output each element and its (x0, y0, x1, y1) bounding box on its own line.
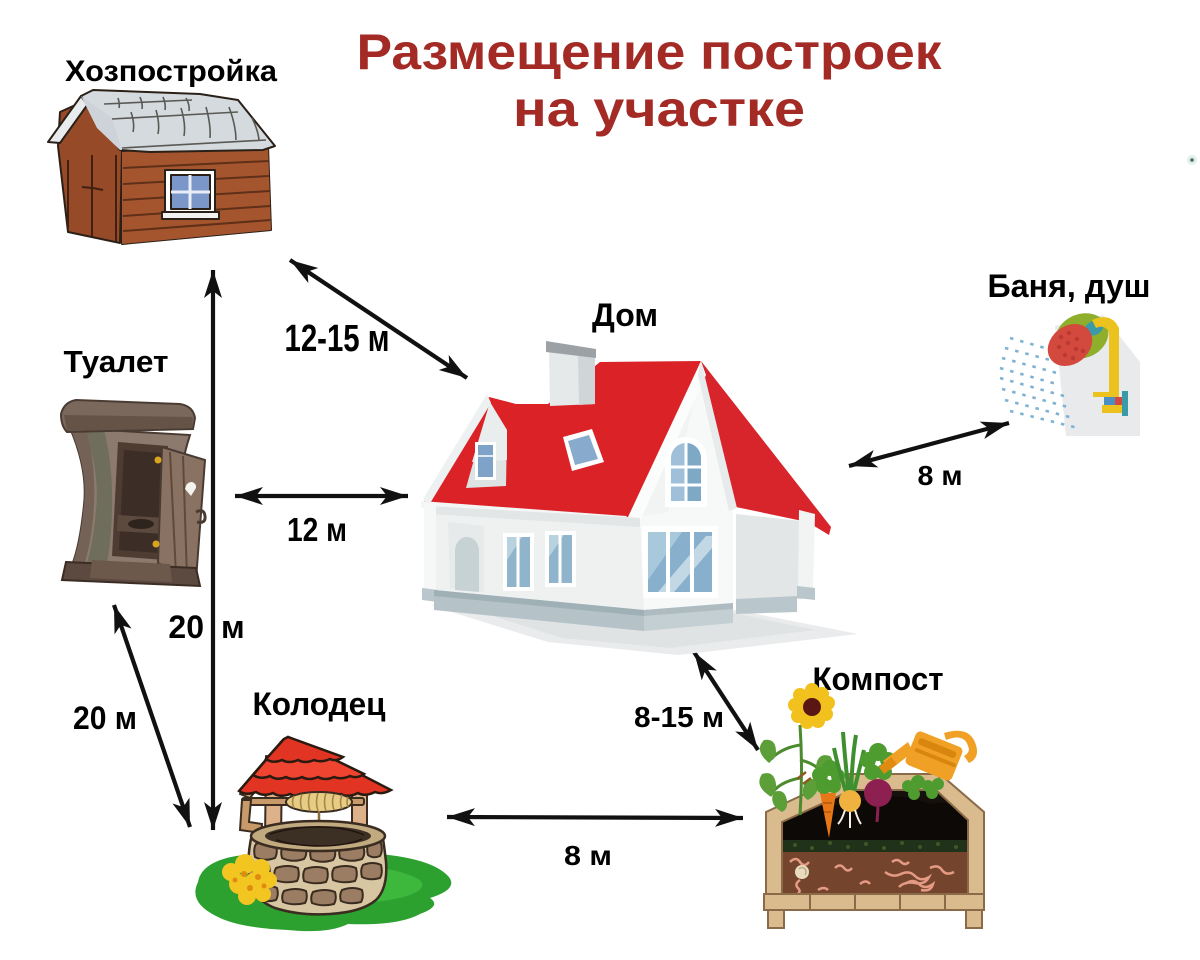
svg-text:8 м: 8 м (918, 460, 963, 491)
svg-text:Компост: Компост (813, 661, 944, 697)
svg-text:м: м (221, 609, 245, 645)
svg-text:8 м: 8 м (564, 840, 612, 871)
svg-text:20: 20 (168, 609, 204, 645)
svg-text:Дом: Дом (592, 297, 658, 333)
svg-text:20 м: 20 м (73, 700, 137, 736)
svg-text:Колодец: Колодец (253, 686, 386, 722)
svg-text:на участке: на участке (513, 81, 805, 137)
svg-text:Баня, душ: Баня, душ (988, 268, 1151, 304)
svg-text:Туалет: Туалет (64, 344, 169, 379)
svg-text:8-15 м: 8-15 м (634, 702, 724, 734)
svg-text:12 м: 12 м (287, 511, 347, 548)
svg-text:12-15 м: 12-15 м (285, 318, 390, 360)
svg-text:Хозпостройка: Хозпостройка (65, 55, 277, 88)
svg-text:Размещение построек: Размещение построек (357, 24, 943, 80)
